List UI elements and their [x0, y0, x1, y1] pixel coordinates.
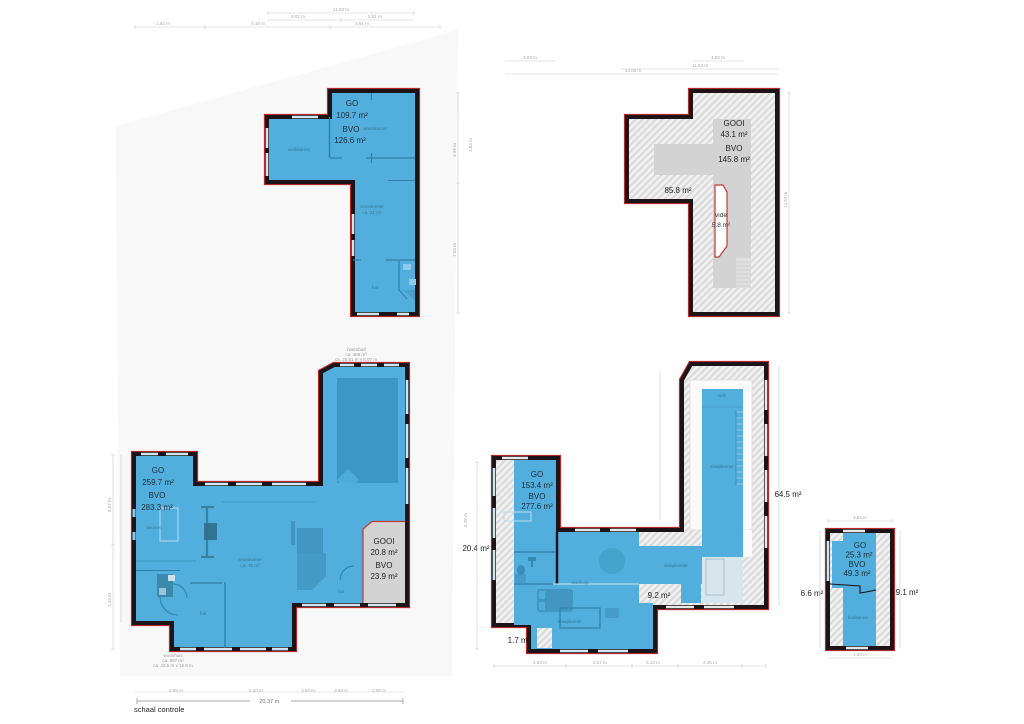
svg-text:64.5 m²: 64.5 m² — [774, 490, 801, 499]
svg-text:hal: hal — [338, 589, 344, 594]
svg-text:woonkamer: woonkamer — [363, 126, 387, 131]
svg-text:4.98 m: 4.98 m — [452, 143, 457, 157]
svg-text:GO: GO — [346, 99, 358, 108]
svg-text:9.2 m²: 9.2 m² — [648, 591, 671, 600]
svg-text:woonkamer: woonkamer — [360, 204, 384, 209]
svg-text:4.18 m: 4.18 m — [251, 21, 265, 26]
svg-text:25.3 m²: 25.3 m² — [845, 551, 872, 560]
svg-text:hal: hal — [372, 285, 378, 290]
svg-text:BVO: BVO — [149, 491, 166, 500]
svg-text:7.43 m: 7.43 m — [107, 593, 112, 607]
svg-text:slaapkamer: slaapkamer — [664, 563, 688, 568]
svg-text:vide: vide — [715, 212, 727, 219]
svg-text:1.83 m: 1.83 m — [853, 652, 867, 657]
svg-text:5.51 m: 5.51 m — [368, 14, 382, 19]
svg-text:3.05 m: 3.05 m — [372, 688, 386, 693]
svg-text:49.3 m²: 49.3 m² — [843, 569, 870, 578]
svg-text:85.8 m²: 85.8 m² — [664, 186, 691, 195]
svg-text:badkamer: badkamer — [848, 615, 869, 620]
svg-text:6.07 m: 6.07 m — [107, 498, 112, 512]
svg-text:ca. 21 m²: ca. 21 m² — [362, 210, 382, 215]
svg-text:2.40 m: 2.40 m — [249, 688, 263, 693]
svg-text:145.8 m²: 145.8 m² — [718, 155, 750, 164]
svg-text:woonkamer: woonkamer — [238, 557, 262, 562]
svg-text:slaapkamer: slaapkamer — [710, 464, 734, 469]
svg-text:GO: GO — [854, 541, 866, 550]
svg-text:14.93 m: 14.93 m — [783, 192, 788, 209]
svg-text:6.02 m: 6.02 m — [291, 14, 305, 19]
svg-text:283.3 m²: 283.3 m² — [141, 503, 173, 512]
svg-text:4.51 m: 4.51 m — [355, 21, 369, 26]
svg-text:126.6 m²: 126.6 m² — [334, 136, 366, 145]
svg-text:BVO: BVO — [343, 125, 360, 134]
svg-text:153.4 m²: 153.4 m² — [521, 481, 553, 490]
svg-text:hal: hal — [200, 611, 206, 616]
svg-text:4.83 m: 4.83 m — [853, 515, 867, 520]
svg-text:BVO: BVO — [529, 492, 546, 501]
svg-text:259.7 m²: 259.7 m² — [142, 478, 174, 487]
svg-text:BVO: BVO — [849, 560, 866, 569]
svg-text:4.83 m: 4.83 m — [711, 55, 725, 60]
svg-text:4.27 m: 4.27 m — [593, 660, 607, 665]
svg-text:43.1 m²: 43.1 m² — [720, 130, 747, 139]
svg-text:1.83 m: 1.83 m — [156, 21, 170, 26]
svg-text:20.8 m²: 20.8 m² — [370, 548, 397, 557]
svg-text:schaal controle: schaal controle — [134, 705, 184, 714]
svg-text:277.6 m²: 277.6 m² — [521, 502, 553, 511]
svg-text:keuken: keuken — [147, 525, 162, 530]
svg-text:1.7 m²: 1.7 m² — [508, 636, 531, 645]
svg-text:5.13 m: 5.13 m — [646, 660, 660, 665]
svg-text:ca. 25.51 m x 6.07 m: ca. 25.51 m x 6.07 m — [335, 357, 377, 362]
svg-text:20.37 m.: 20.37 m. — [259, 699, 281, 705]
svg-text:BVO: BVO — [726, 144, 743, 153]
svg-text:ca. 75 m²: ca. 75 m² — [240, 563, 260, 568]
svg-text:2.46 m: 2.46 m — [703, 660, 717, 665]
svg-text:werkkamer: werkkamer — [288, 147, 311, 152]
svg-text:slaapkamer: slaapkamer — [558, 619, 582, 624]
svg-text:5.78 m: 5.78 m — [463, 513, 468, 527]
svg-text:GOOI: GOOI — [374, 537, 395, 546]
svg-text:3.83 m: 3.83 m — [334, 688, 348, 693]
svg-text:4.83 m: 4.83 m — [468, 138, 473, 152]
svg-text:5.8 m²: 5.8 m² — [712, 222, 731, 229]
svg-text:GO: GO — [152, 466, 164, 475]
svg-text:ca. 23.5 m x 16.9 m: ca. 23.5 m x 16.9 m — [153, 663, 193, 668]
svg-text:BVO: BVO — [376, 561, 393, 570]
svg-text:11.53 m: 11.53 m — [333, 7, 349, 12]
svg-text:2.95 m: 2.95 m — [169, 688, 183, 693]
svg-text:3.03 m: 3.03 m — [301, 688, 315, 693]
svg-text:GOOI: GOOI — [724, 119, 745, 128]
svg-text:9.1 m²: 9.1 m² — [896, 588, 919, 597]
svg-text:23.9 m²: 23.9 m² — [370, 572, 397, 581]
svg-text:23.09 m: 23.09 m — [625, 68, 642, 73]
svg-text:7.04 m: 7.04 m — [452, 243, 457, 257]
svg-text:11.53 m: 11.53 m — [692, 63, 708, 68]
svg-text:overloop: overloop — [571, 580, 589, 585]
svg-text:109.7 m²: 109.7 m² — [336, 111, 368, 120]
svg-text:vide: vide — [718, 393, 727, 398]
svg-text:4.83 m: 4.83 m — [533, 660, 547, 665]
svg-text:GO: GO — [531, 470, 543, 479]
svg-text:3.83 m: 3.83 m — [523, 55, 537, 60]
svg-text:20.4 m²: 20.4 m² — [462, 544, 489, 553]
